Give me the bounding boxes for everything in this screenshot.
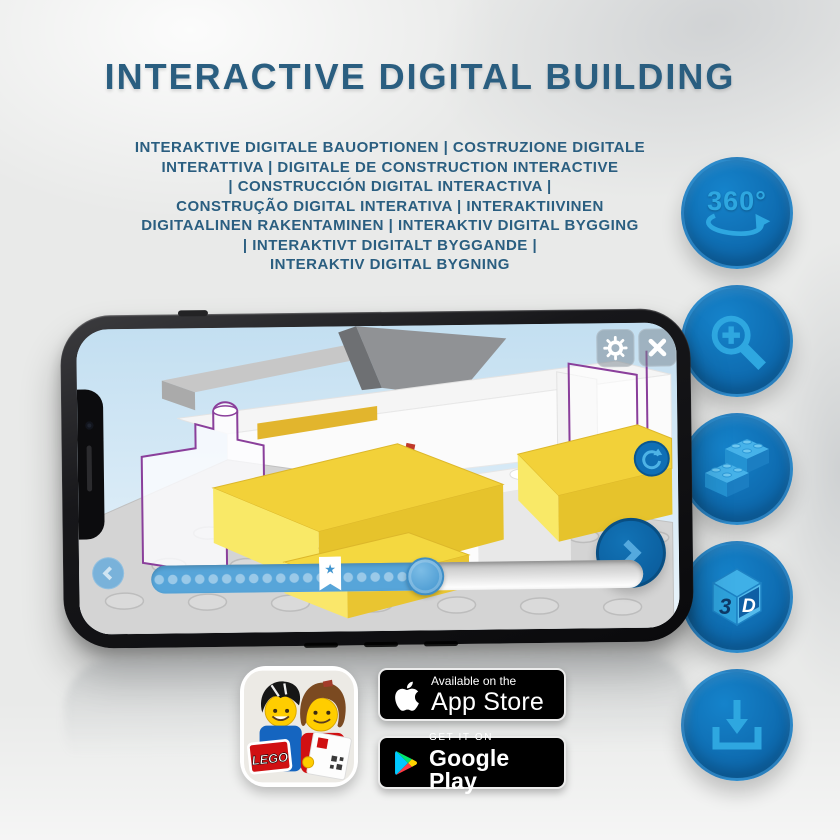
apple-icon: [392, 678, 422, 712]
smartphone: ★: [60, 308, 694, 649]
google-play-badge[interactable]: GET IT ON Google Play: [378, 736, 566, 789]
app-icon-art: LEGO: [244, 670, 354, 783]
phone-port-slot: [304, 642, 338, 647]
phone-screen: ★: [76, 322, 680, 634]
ghost-stud: [213, 406, 237, 416]
rotate-icon: [640, 446, 664, 470]
close-icon: [645, 335, 669, 359]
download-icon: [701, 689, 773, 761]
lego-logo-plate: LEGO: [248, 740, 291, 773]
cube-face-3-label: 3: [719, 594, 731, 619]
promo-page: INTERACTIVE DIGITAL BUILDING INTERAKTIVE…: [0, 0, 840, 840]
qr-box: [306, 732, 351, 780]
phone-side-button: [178, 310, 208, 316]
lego-bricks-icon: [701, 433, 773, 505]
slider-thumb[interactable]: [406, 557, 444, 595]
google-play-name: Google Play: [429, 747, 564, 793]
earpiece-speaker: [87, 445, 93, 491]
rotate-view-button[interactable]: [634, 440, 670, 476]
slider-step-dots: [151, 562, 431, 593]
rotation-arrow-icon: [699, 213, 775, 237]
phone-notch: [77, 389, 105, 539]
phone-port-slot: [424, 641, 458, 646]
subtitle-line: INTERAKTIV DIGITAL BYGNING: [70, 255, 710, 275]
feature-bricks: [681, 413, 793, 525]
app-store-tagline: Available on the: [431, 675, 544, 687]
chevron-left-icon: [99, 564, 117, 582]
slider-fill: [151, 562, 431, 593]
feature-zoom: [681, 285, 793, 397]
settings-button[interactable]: [596, 329, 634, 367]
google-play-tagline: GET IT ON: [429, 733, 564, 743]
gear-icon: [602, 335, 628, 361]
cube-face-d-label: D: [742, 596, 756, 617]
subtitle-line: INTERATTIVA | DIGITALE DE CONSTRUCTION I…: [70, 158, 710, 178]
feature-360-rotation: 360°: [681, 157, 793, 269]
3d-cube-icon: 3 D: [701, 561, 773, 633]
phone-reflection: [63, 652, 690, 780]
front-camera: [85, 421, 93, 429]
subtitle-line: DIGITAALINEN RAKENTAMINEN | INTERAKTIV D…: [70, 216, 710, 236]
subtitle-line: INTERAKTIVE DIGITALE BAUOPTIONEN | COSTR…: [70, 138, 710, 158]
page-title: INTERACTIVE DIGITAL BUILDING: [0, 56, 840, 98]
feature-3d-view: 3 D: [681, 541, 793, 653]
build-progress-slider[interactable]: ★: [151, 560, 643, 594]
subtitle-line: CONSTRUÇÃO DIGITAL INTERATIVA | INTERAKT…: [70, 197, 710, 217]
lego-app-icon[interactable]: LEGO: [240, 666, 358, 787]
multilingual-subtitle: INTERAKTIVE DIGITALE BAUOPTIONEN | COSTR…: [70, 138, 710, 275]
subtitle-line: | INTERAKTIVT DIGITALT BYGGANDE |: [70, 236, 710, 256]
zoom-in-icon: [702, 306, 772, 376]
360-degree-label: 360°: [707, 189, 767, 213]
google-play-icon: [392, 748, 420, 778]
phone-port-slot: [364, 642, 398, 647]
subtitle-line: | CONSTRUCCIÓN DIGITAL INTERACTIVA |: [70, 177, 710, 197]
close-button[interactable]: [638, 328, 676, 366]
feature-download: [681, 669, 793, 781]
app-store-badge[interactable]: Available on the App Store: [378, 668, 566, 721]
app-store-name: App Store: [431, 690, 544, 715]
